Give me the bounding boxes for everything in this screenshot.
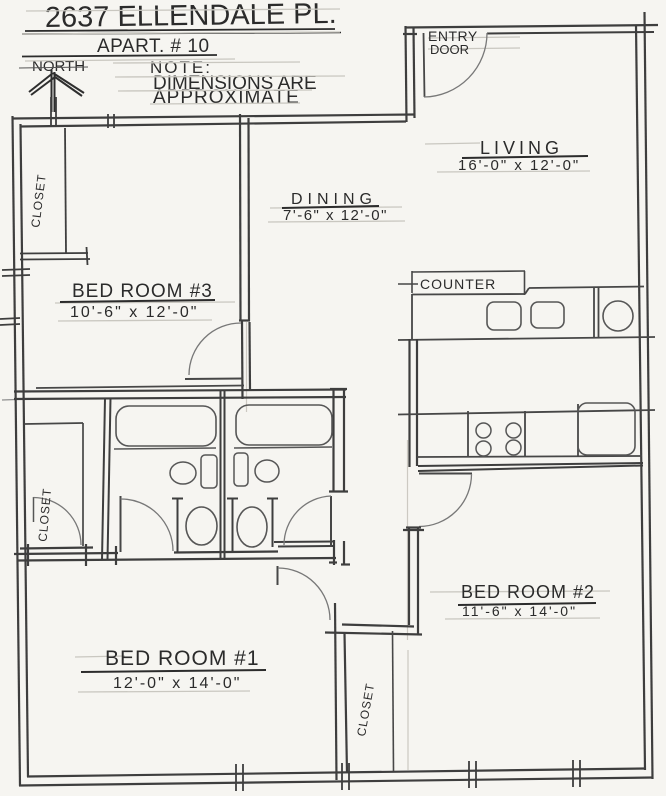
svg-text:BED ROOM #3: BED ROOM #3 <box>72 281 213 302</box>
svg-text:DOOR: DOOR <box>430 42 469 57</box>
svg-text:11'-6" x 14'-0": 11'-6" x 14'-0" <box>462 603 577 619</box>
svg-text:12'-0" x 14'-0": 12'-0" x 14'-0" <box>113 675 241 692</box>
svg-text:APART. # 10: APART. # 10 <box>97 36 210 57</box>
svg-text:BED ROOM #1: BED ROOM #1 <box>105 647 260 670</box>
svg-text:16'-0" x 12'-0": 16'-0" x 12'-0" <box>458 157 580 174</box>
svg-text:10'-6" x 12'-0": 10'-6" x 12'-0" <box>70 304 198 321</box>
svg-text:LIVING: LIVING <box>480 138 563 158</box>
svg-text:COUNTER: COUNTER <box>420 276 496 292</box>
svg-text:7'-6" x 12'-0": 7'-6" x 12'-0" <box>283 207 388 224</box>
svg-text:BED ROOM #2: BED ROOM #2 <box>461 582 595 602</box>
